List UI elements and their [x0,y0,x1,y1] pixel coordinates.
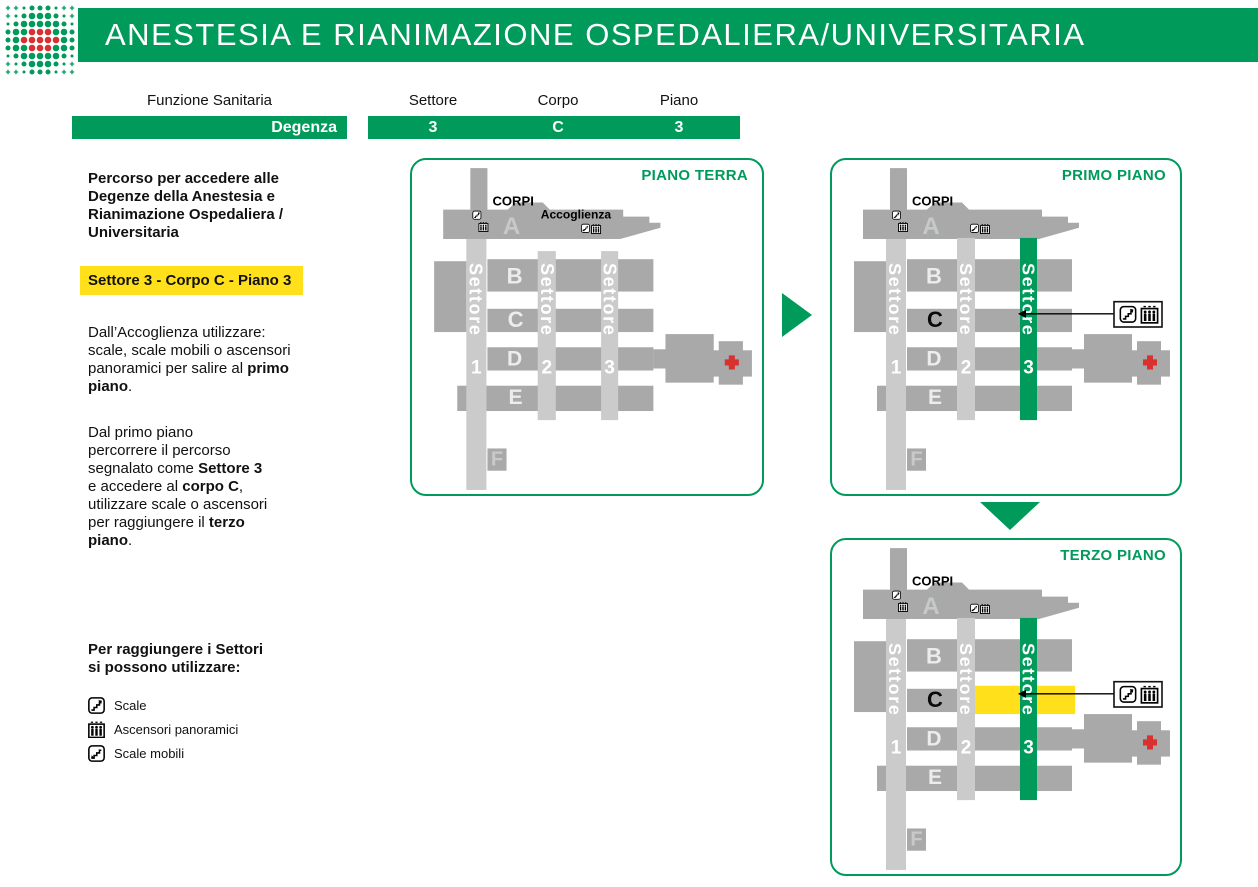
corpo-e-label: E [928,766,942,789]
escalator-icon [89,745,104,760]
panoramic-elevator-icon [592,225,601,234]
corpo-a-label: A [503,213,520,240]
settore-3-label: Settore [600,263,620,336]
east-block [1084,714,1132,763]
settore-3-number: 3 [1023,737,1034,758]
route-intro-text: Percorso per accedere alle Degenze della… [88,170,348,242]
corpo-d-label: D [507,347,522,370]
corpo-f-label: F [910,449,922,471]
corpi-label: CORPI [912,573,953,588]
settore-2-label: Settore [956,263,976,336]
panoramic-elevator-icon [89,722,104,737]
panoramic-elevator-icon [1141,307,1157,323]
function-column-header: Funzione Sanitaria [72,92,347,109]
stairs-icon [89,697,104,712]
building-wing [890,168,907,211]
settore-2-number: 2 [961,737,972,758]
route-highlight: Settore 3 - Corpo C - Piano 3 [80,266,303,295]
corpi-label: CORPI [492,194,533,209]
corpo-b-label: B [507,263,523,288]
function-value-bar: Degenza [72,116,347,139]
floor-panel-piano-terra: CORPIABCDEFSettore1Settore2Settore3Accog… [410,158,764,496]
settore-1-label: Settore [465,263,485,336]
escalator-icon [970,224,978,232]
panel-title: PIANO TERRA [641,167,748,184]
west-block [434,261,466,332]
west-block [854,261,886,332]
settore-2-number: 2 [541,358,552,379]
map-piano-terra: CORPIABCDEFSettore1Settore2Settore3Accog… [412,160,762,494]
hospital-dots-logo [2,2,78,78]
header-bar: ANESTESIA E RIANIMAZIONE OSPEDALIERA/UNI… [78,8,1258,62]
settore-3-number: 3 [604,358,615,379]
stairs-icon [473,211,481,219]
settore-1-number: 1 [471,358,482,379]
west-block [854,641,886,712]
instruction-paragraph-1: Dall’Accoglienza utilizzare: scale, scal… [88,324,348,396]
settore-1-number: 1 [891,357,902,378]
settore-value: 3 [368,116,498,139]
stairs-icon [1120,307,1135,322]
settore-header: Settore [368,92,498,109]
corpo-c-label: C [927,307,943,332]
accoglienza-label: Accoglienza [541,208,612,222]
panoramic-elevator-icon [899,602,908,611]
settore-2-label: Settore [537,263,557,336]
legend-label: Scale [114,698,147,713]
corpo-d-label: D [926,727,941,750]
settore-1-number: 1 [891,737,902,758]
corpo-e-label: E [509,386,523,409]
map-primo-piano: CORPIABCDEFSettore1Settore2Settore3 [832,160,1180,494]
panel-title: TERZO PIANO [1060,547,1166,564]
settore-2-label: Settore [956,643,976,716]
panoramic-elevator-icon [899,222,908,231]
page-title: ANESTESIA E RIANIMAZIONE OSPEDALIERA/UNI… [105,17,1086,52]
settore-1-label: Settore [885,643,905,716]
settore-2-number: 2 [961,357,972,378]
settore-1-label: Settore [885,263,905,336]
legend-label: Ascensori panoramici [114,722,238,737]
legend-item-escalators: Scale mobili [88,744,184,762]
stairs-icon [88,697,105,714]
piano-header: Piano [618,92,740,109]
escalator-icon [581,224,589,232]
corpo-header: Corpo [498,92,618,109]
corpo-e-label: E [928,386,942,409]
floor-panel-terzo-piano: CORPIABCDEFSettore1Settore2Settore3 TERZ… [830,538,1182,876]
building-wing [470,168,487,211]
panoramic-elevator-icon [981,225,990,234]
corpo-f-label: F [910,829,922,851]
next-floor-arrow-icon [782,293,812,337]
stairs-icon [1120,687,1135,702]
panoramic-elevator-icon [88,721,105,738]
map-terzo-piano: CORPIABCDEFSettore1Settore2Settore3 [832,540,1180,874]
floor-panel-primo-piano: CORPIABCDEFSettore1Settore2Settore3 PRIM… [830,158,1182,496]
location-column-headers: Settore Corpo Piano [368,92,740,109]
escalator-icon [970,604,978,612]
building-wing [890,548,907,591]
wayfinding-page: ANESTESIA E RIANIMAZIONE OSPEDALIERA/UNI… [0,0,1258,887]
legend-label: Scale mobili [114,746,184,761]
panoramic-elevator-icon [1141,687,1157,703]
escalator-icon [88,745,105,762]
corpo-a-label: A [922,213,939,240]
east-block [1084,334,1132,383]
corpo-value: C [498,116,618,139]
legend-heading: Per raggiungere i Settori si possono uti… [88,641,263,677]
corpo-c-label: C [927,687,943,712]
stairs-icon [892,591,900,599]
instruction-paragraph-2: Dal primo piano percorrere il percorso s… [88,424,348,550]
panoramic-elevator-icon [479,222,488,231]
corpi-label: CORPI [912,193,953,208]
corpo-d-label: D [926,347,941,370]
settore-3-label: Settore [1019,263,1039,336]
settore-3-label: Settore [1019,643,1039,716]
location-values-bar: 3 C 3 [368,116,740,139]
corpo-f-label: F [491,449,503,471]
corpo-b-label: B [926,643,942,668]
stairs-icon [892,211,900,219]
settore-3-number: 3 [1023,357,1034,378]
piano-value: 3 [618,116,740,139]
corpo-b-label: B [926,263,942,288]
next-floor-arrow-icon [980,502,1040,530]
east-block [665,334,713,383]
corpo-c-label: C [508,307,524,332]
panel-title: PRIMO PIANO [1062,167,1166,184]
panoramic-elevator-icon [981,605,990,614]
legend-item-stairs: Scale [88,696,147,714]
corpo-a-label: A [922,593,939,620]
legend-item-elevators: Ascensori panoramici [88,720,238,738]
